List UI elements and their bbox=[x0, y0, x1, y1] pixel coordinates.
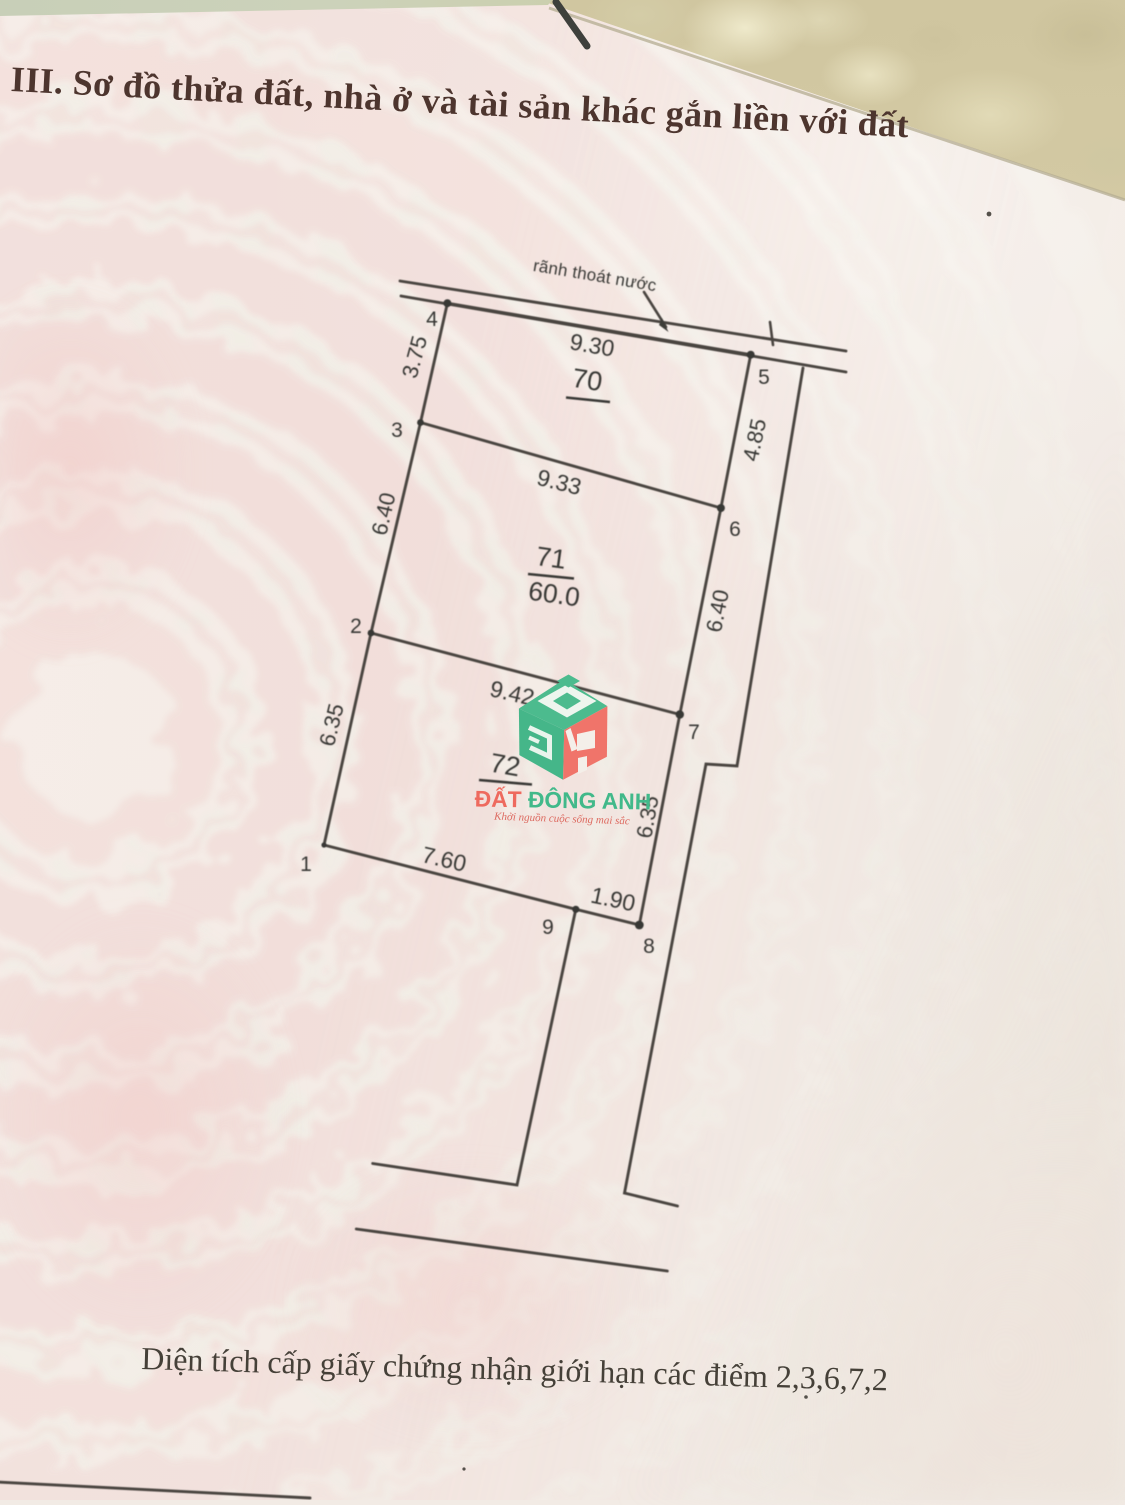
svg-text:4.85: 4.85 bbox=[738, 416, 771, 463]
svg-text:1: 1 bbox=[300, 853, 312, 876]
svg-text:3: 3 bbox=[391, 419, 403, 442]
svg-text:71: 71 bbox=[534, 541, 568, 575]
svg-text:5: 5 bbox=[758, 366, 770, 389]
svg-text:6: 6 bbox=[729, 518, 741, 541]
svg-text:9.30: 9.30 bbox=[568, 328, 617, 361]
svg-text:1.90: 1.90 bbox=[589, 882, 638, 917]
svg-text:8: 8 bbox=[643, 935, 655, 958]
svg-text:6.35: 6.35 bbox=[314, 701, 349, 749]
svg-text:4: 4 bbox=[426, 308, 438, 331]
svg-text:3.75: 3.75 bbox=[397, 333, 432, 381]
svg-text:7: 7 bbox=[688, 721, 700, 744]
svg-text:9.33: 9.33 bbox=[534, 464, 584, 500]
svg-text:6.40: 6.40 bbox=[701, 587, 734, 634]
svg-text:72: 72 bbox=[488, 748, 523, 783]
svg-text:Diện tích cấp giấy chứng nhận: Diện tích cấp giấy chứng nhận giới hạn c… bbox=[141, 1340, 889, 1397]
svg-text:rãnh thoát nước: rãnh thoát nước bbox=[532, 256, 658, 295]
svg-text:60.0: 60.0 bbox=[527, 576, 582, 613]
svg-text:2: 2 bbox=[350, 615, 362, 638]
svg-text:9: 9 bbox=[542, 916, 554, 939]
svg-text:70: 70 bbox=[570, 363, 604, 397]
